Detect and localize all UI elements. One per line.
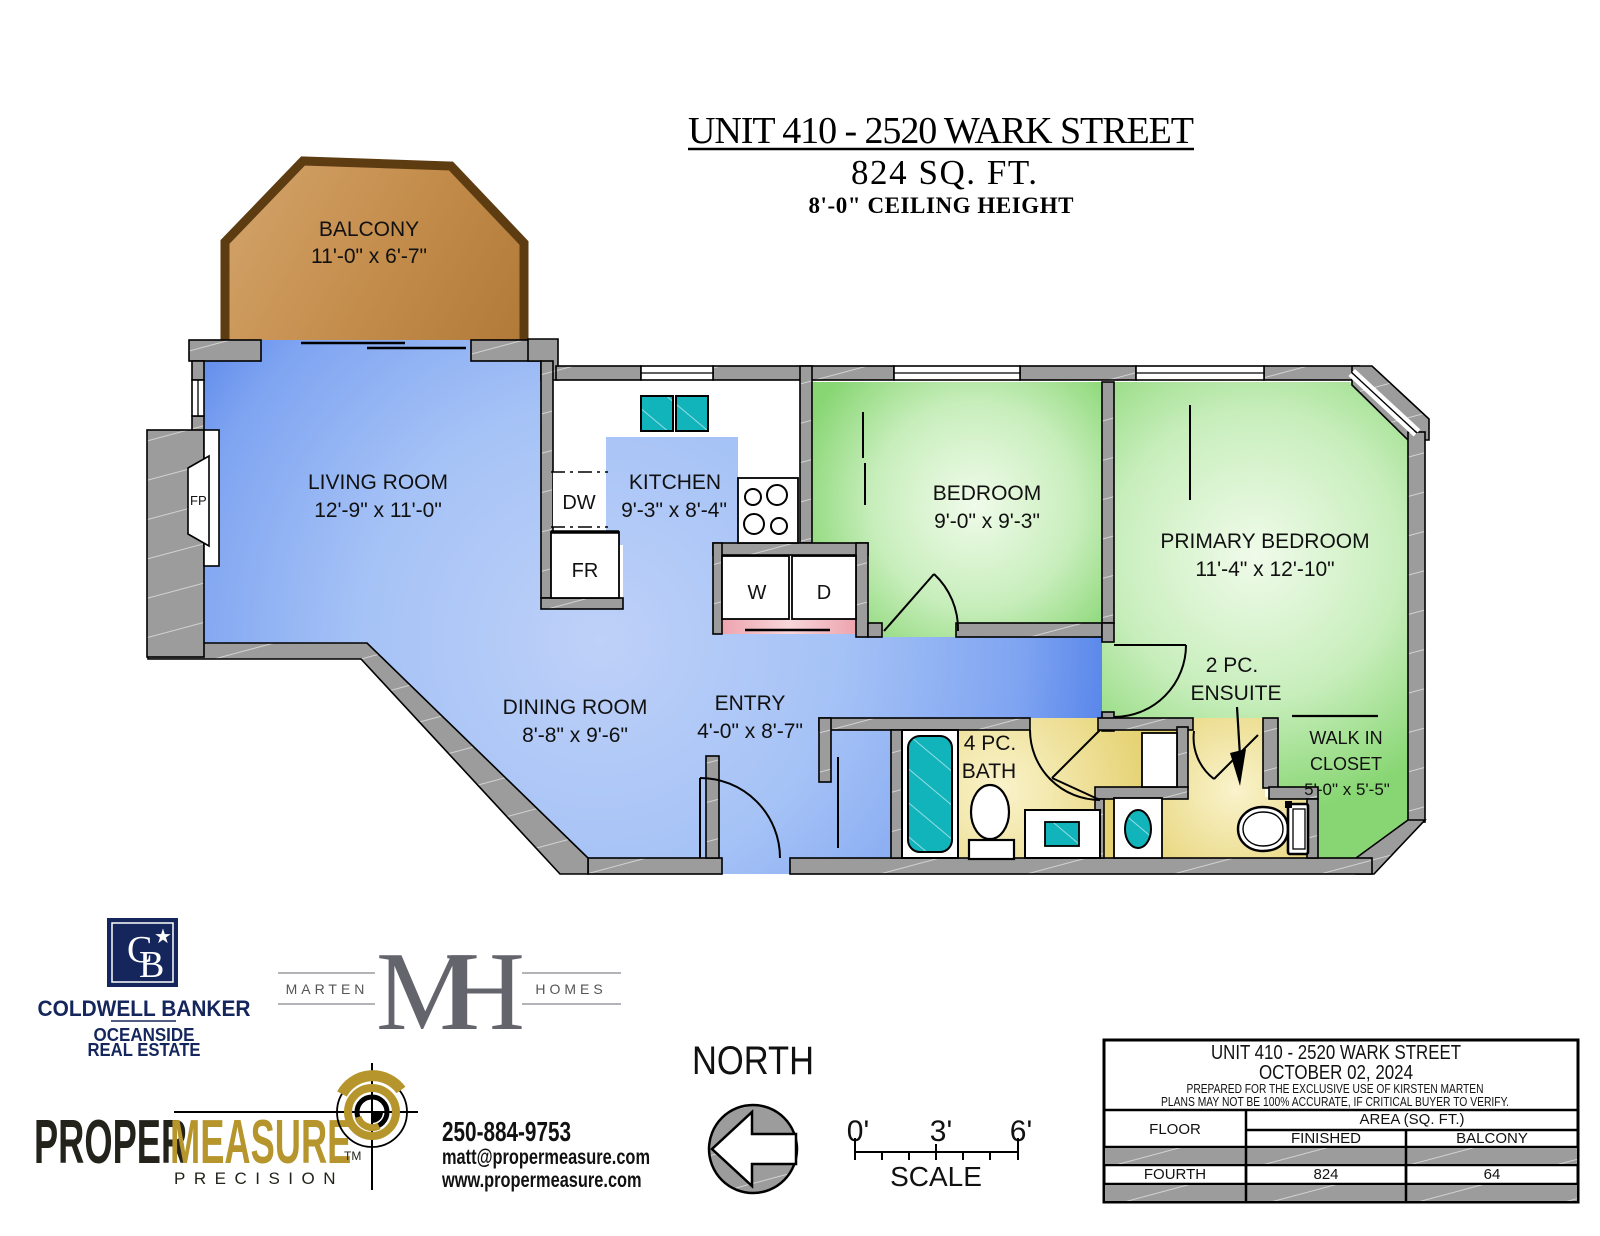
svg-text:BATH: BATH <box>962 760 1016 783</box>
svg-text:PRIMARY BEDROOM: PRIMARY BEDROOM <box>1160 530 1369 553</box>
svg-text:9'-3" x 8'-4": 9'-3" x 8'-4" <box>621 499 727 522</box>
svg-text:H: H <box>444 930 525 1054</box>
svg-text:BALCONY: BALCONY <box>1456 1130 1528 1147</box>
svg-text:COLDWELL BANKER: COLDWELL BANKER <box>38 996 251 1021</box>
svg-text:AREA (SQ. FT.): AREA (SQ. FT.) <box>1359 1111 1464 1128</box>
svg-text:REAL ESTATE: REAL ESTATE <box>88 1040 201 1060</box>
svg-text:8'-0" CEILING HEIGHT: 8'-0" CEILING HEIGHT <box>809 193 1074 218</box>
svg-text:824: 824 <box>1313 1166 1338 1183</box>
svg-text:CLOSET: CLOSET <box>1310 754 1382 774</box>
svg-text:ENTRY: ENTRY <box>715 692 786 715</box>
svg-text:4'-0" x 8'-7": 4'-0" x 8'-7" <box>697 720 803 743</box>
svg-text:3': 3' <box>930 1115 952 1148</box>
svg-text:0': 0' <box>847 1115 869 1148</box>
svg-text:HOMES: HOMES <box>535 981 606 997</box>
svg-text:8'-8" x 9'-6": 8'-8" x 9'-6" <box>522 724 628 747</box>
svg-text:DINING ROOM: DINING ROOM <box>503 696 648 719</box>
svg-text:2 PC.: 2 PC. <box>1206 654 1259 677</box>
svg-text:250-884-9753: 250-884-9753 <box>442 1117 571 1148</box>
svg-text:NORTH: NORTH <box>692 1039 814 1083</box>
svg-text:D: D <box>817 582 831 604</box>
svg-text:FINISHED: FINISHED <box>1291 1130 1361 1147</box>
svg-text:ENSUITE: ENSUITE <box>1190 682 1281 705</box>
svg-text:5'-0" x 5'-5": 5'-0" x 5'-5" <box>1304 780 1390 799</box>
svg-text:BEDROOM: BEDROOM <box>933 482 1042 505</box>
svg-text:www.propermeasure.com: www.propermeasure.com <box>441 1168 641 1191</box>
svg-text:B: B <box>139 944 164 986</box>
svg-text:PREPARED FOR THE EXCLUSIVE USE: PREPARED FOR THE EXCLUSIVE USE OF KIRSTE… <box>1187 1082 1484 1096</box>
svg-text:WALK IN: WALK IN <box>1309 728 1382 748</box>
svg-text:W: W <box>748 582 767 604</box>
svg-text:LIVING ROOM: LIVING ROOM <box>308 471 448 494</box>
svg-text:6': 6' <box>1010 1115 1032 1148</box>
svg-text:MARTEN: MARTEN <box>286 981 369 997</box>
svg-text:9'-0" x 9'-3": 9'-0" x 9'-3" <box>934 510 1040 533</box>
svg-text:PROPER: PROPER <box>34 1107 187 1177</box>
svg-text:FP: FP <box>190 493 207 508</box>
svg-text:KITCHEN: KITCHEN <box>629 471 721 494</box>
svg-text:★: ★ <box>154 926 172 948</box>
svg-text:UNIT 410 - 2520 WARK STREET: UNIT 410 - 2520 WARK STREET <box>1211 1042 1461 1064</box>
svg-text:4 PC.: 4 PC. <box>964 732 1017 755</box>
svg-text:11'-4" x 12'-10": 11'-4" x 12'-10" <box>1195 558 1334 581</box>
svg-text:TM: TM <box>344 1149 361 1163</box>
svg-text:FR: FR <box>572 560 599 582</box>
svg-text:DW: DW <box>562 492 595 514</box>
svg-text:OCTOBER 02, 2024: OCTOBER 02, 2024 <box>1259 1062 1413 1084</box>
svg-text:MEASURE: MEASURE <box>170 1107 351 1177</box>
svg-text:BALCONY: BALCONY <box>319 218 419 241</box>
svg-text:FOURTH: FOURTH <box>1144 1166 1206 1183</box>
svg-text:PRECISION: PRECISION <box>174 1169 344 1188</box>
svg-text:UNIT 410 - 2520 WARK STREET: UNIT 410 - 2520 WARK STREET <box>688 110 1194 152</box>
svg-text:FLOOR: FLOOR <box>1149 1121 1201 1138</box>
svg-text:64: 64 <box>1484 1166 1501 1183</box>
svg-text:PLANS MAY NOT BE 100% ACCURATE: PLANS MAY NOT BE 100% ACCURATE, IF CRITI… <box>1161 1095 1509 1109</box>
svg-text:SCALE: SCALE <box>890 1161 982 1192</box>
svg-text:11'-0" x 6'-7": 11'-0" x 6'-7" <box>311 245 427 268</box>
svg-text:12'-9" x 11'-0": 12'-9" x 11'-0" <box>314 499 442 522</box>
svg-text:824 SQ. FT.: 824 SQ. FT. <box>851 153 1037 192</box>
svg-text:matt@propermeasure.com: matt@propermeasure.com <box>442 1145 650 1168</box>
